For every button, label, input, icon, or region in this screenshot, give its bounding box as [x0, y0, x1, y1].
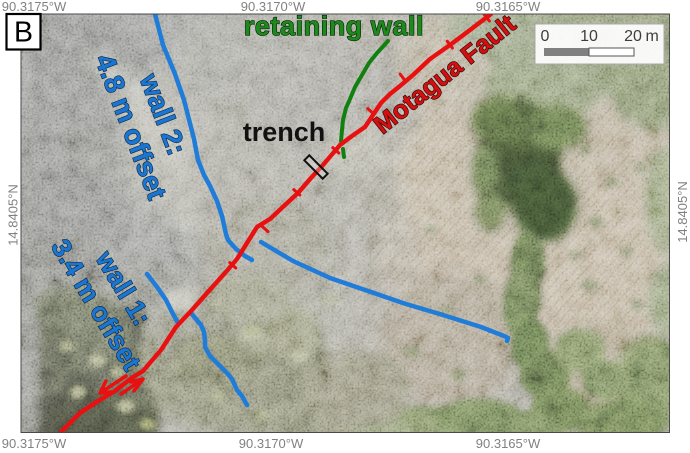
svg-text:14.8405°N: 14.8405°N — [6, 184, 21, 246]
svg-text:14.8405°N: 14.8405°N — [675, 181, 690, 243]
svg-text:90.3175°W: 90.3175°W — [2, 436, 67, 451]
svg-text:90.3165°W: 90.3165°W — [476, 0, 541, 14]
svg-text:retaining wall: retaining wall — [244, 11, 424, 41]
svg-text:0: 0 — [541, 28, 550, 45]
svg-text:10: 10 — [580, 28, 598, 45]
svg-text:90.3175°W: 90.3175°W — [2, 0, 67, 14]
svg-text:trench: trench — [243, 117, 326, 147]
svg-text:B: B — [14, 17, 33, 49]
svg-text:90.3165°W: 90.3165°W — [476, 436, 541, 451]
svg-text:90.3170°W: 90.3170°W — [239, 436, 304, 451]
svg-text:m: m — [646, 28, 659, 45]
svg-text:20: 20 — [624, 28, 642, 45]
